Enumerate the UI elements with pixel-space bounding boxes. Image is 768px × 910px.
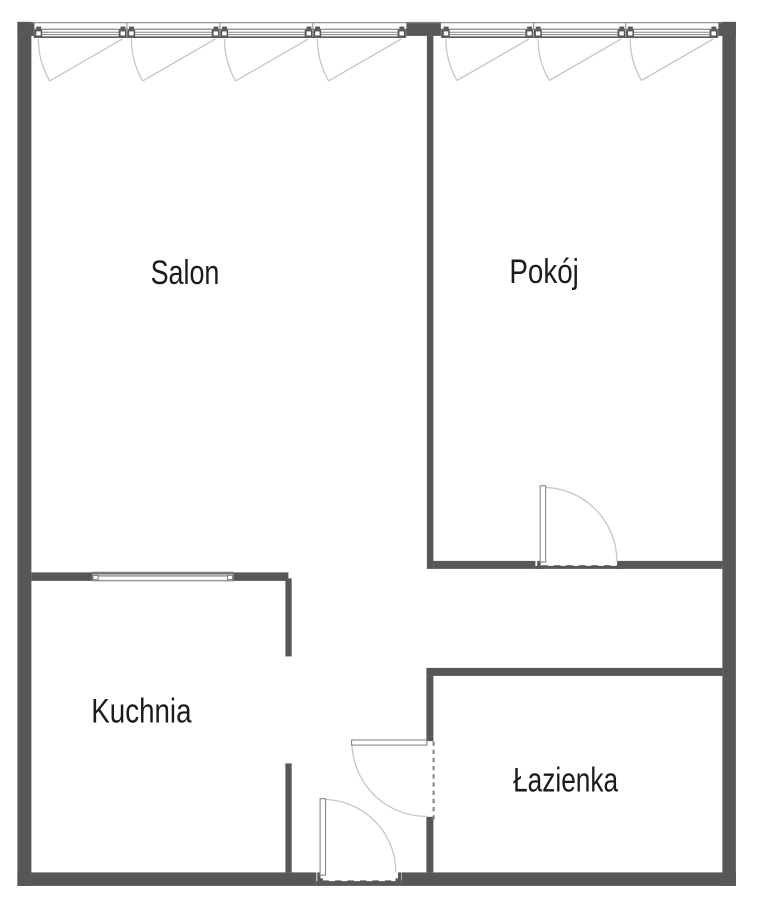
svg-text:Salon: Salon bbox=[151, 254, 220, 292]
svg-text:Łazienka: Łazienka bbox=[513, 762, 618, 799]
svg-text:Kuchnia: Kuchnia bbox=[91, 692, 192, 730]
svg-text:Pokój: Pokój bbox=[509, 252, 578, 290]
